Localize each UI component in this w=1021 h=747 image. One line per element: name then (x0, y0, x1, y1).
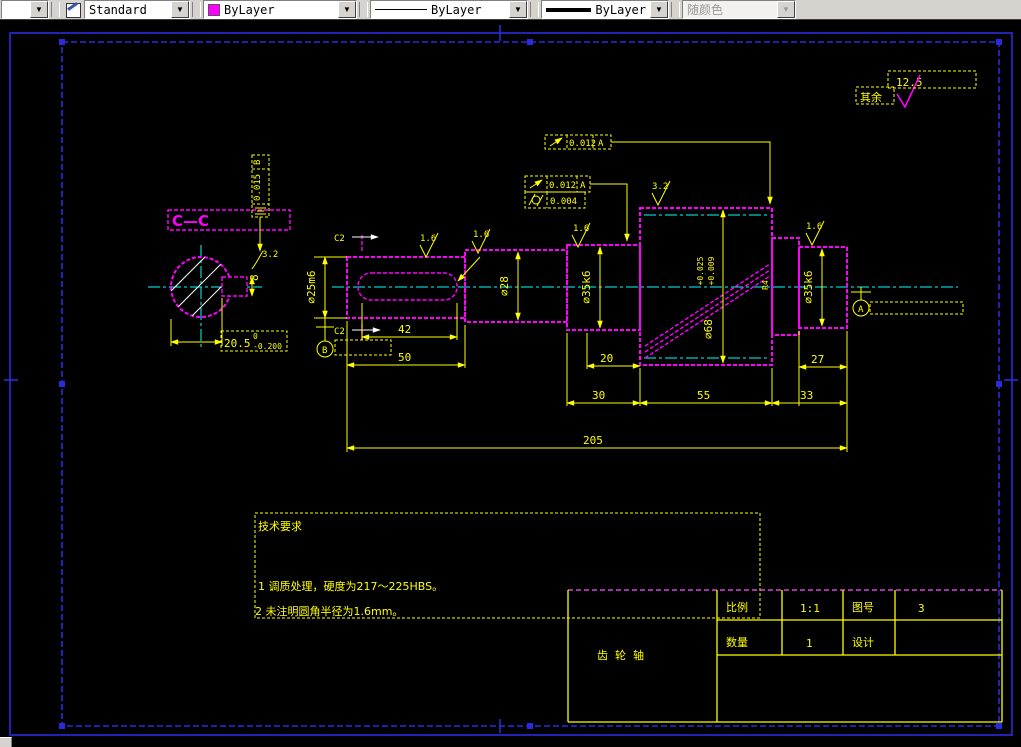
scrollbar-corner (0, 737, 12, 747)
section-dimensions[interactable]: 20.5 0 -0.200 8 3.2 (171, 250, 287, 351)
linetype-combo[interactable]: ByLayer ▼ (370, 0, 528, 19)
title-block[interactable]: 齿轮轴 比例 1:1 图号 3 数量 1 设计 (568, 590, 1002, 722)
color-combo[interactable]: ByLayer ▼ (203, 0, 357, 19)
roughness-value: 3.2 (652, 182, 668, 192)
key-width-dim: 8 (248, 274, 261, 281)
dia-left-text: ∅25m6 (305, 270, 318, 303)
scale-value: 1:1 (800, 602, 820, 615)
section-tol-upper: 0 (253, 332, 258, 341)
roughness-default[interactable]: 其余 12.5 (856, 71, 976, 107)
drawing-canvas[interactable]: C—C 20.5 0 -0.200 8 3.2 0.012 A (0, 19, 1021, 747)
dim-total-length[interactable]: 205 (347, 434, 847, 448)
plotstyle-combo: 随颜色 ▼ (682, 0, 796, 19)
tech-requirements[interactable]: 技术要求 1 调质处理，硬度为217～225HBS。 2 未注明圆角半径为1.6… (255, 513, 760, 618)
chamfer-bottom[interactable]: C2 (334, 327, 380, 337)
layer-combo-partial[interactable]: ▼ (1, 0, 49, 19)
chevron-down-icon[interactable]: ▼ (171, 1, 189, 18)
toolbar-separator (530, 2, 539, 17)
symmetry-icon (255, 208, 266, 214)
color-combo-text: ByLayer (204, 1, 338, 18)
roughness-keyway-shaft[interactable]: 1.6 (420, 233, 438, 257)
datum-a[interactable]: A (851, 287, 963, 316)
toolbar-separator (51, 2, 60, 17)
chevron-down-icon[interactable]: ▼ (509, 1, 527, 18)
gdt4-value: 0.015 (253, 174, 263, 201)
cylindricity-icon (529, 194, 543, 206)
roughness-left-journal[interactable]: 1.6 (572, 223, 590, 247)
chevron-down-icon[interactable]: ▼ (338, 1, 356, 18)
gdt1-datum: A (598, 139, 604, 149)
circular-runout-icon (530, 180, 542, 188)
dim-left-section-length[interactable]: 50 (347, 351, 465, 365)
gdt1-value: 0.012 (569, 139, 596, 149)
section-label: C—C (172, 212, 209, 230)
circular-runout-icon (550, 138, 562, 146)
tech-req-item-2: 2 未注明圆角半径为1.6mm。 (255, 604, 403, 618)
linetype-combo-text: ByLayer (371, 1, 509, 18)
linetype-value: ByLayer (431, 3, 482, 17)
dim-spacer[interactable]: 20 (587, 352, 640, 366)
roughness-step-shaft[interactable]: 1.6 (458, 229, 490, 281)
gdt-frame-runout-top[interactable]: 0.012 A (545, 135, 770, 204)
dia-step-text: ∅28 (498, 276, 511, 296)
roughness-section-keyway: 3.2 (252, 250, 278, 269)
quantity-label: 数量 (726, 636, 748, 649)
drawing-no-label: 图号 (852, 601, 874, 614)
centerlines[interactable] (148, 215, 958, 358)
dim-dia-step[interactable]: ∅28 (498, 252, 518, 320)
gdt-frame-cylindricity[interactable]: 0.004 (525, 192, 585, 208)
dim-right-journal-length[interactable]: 27 (799, 353, 847, 367)
toolbar-separator (359, 2, 368, 17)
dia-gear-text: ∅68 (702, 319, 715, 339)
chevron-down-icon[interactable]: ▼ (650, 1, 668, 18)
gdt2-datum: A (580, 181, 586, 191)
thin-line-icon (375, 9, 427, 10)
drawing-no-value: 3 (918, 602, 925, 615)
cad-application-window: ▼ Standard ▼ ByLayer ▼ ByLayer ▼ (0, 0, 1021, 747)
paper-frame[interactable] (4, 25, 1018, 735)
total-length-text: 205 (583, 434, 603, 447)
dia-gear-tol-upper: +0.025 (696, 256, 705, 285)
object-properties-toolbar: ▼ Standard ▼ ByLayer ▼ ByLayer ▼ (0, 0, 1021, 20)
gdt-frame-symmetry[interactable]: B 0.015 (252, 155, 269, 251)
chevron-down-icon: ▼ (777, 1, 795, 18)
gdt4-datum: B (253, 160, 263, 165)
left-journal-length-text: 30 (592, 389, 605, 402)
part-name: 齿轮轴 (597, 648, 651, 662)
dim-gear-length[interactable]: 55 (640, 389, 772, 403)
dia-left-journal-text: ∅35k6 (580, 270, 593, 303)
tech-req-title: 技术要求 (258, 520, 302, 533)
toolbar-separator (192, 2, 201, 17)
gdt3-value: 0.004 (550, 197, 577, 207)
text-style-combo[interactable]: Standard ▼ (84, 0, 190, 19)
dim-right-step-length[interactable]: 33 (772, 389, 847, 403)
dim-left-journal-length[interactable]: 30 (567, 389, 640, 403)
color-swatch (208, 4, 220, 16)
scale-label: 比例 (726, 600, 748, 614)
designer-label: 设计 (852, 636, 874, 649)
dia-right-journal-text: ∅35k6 (802, 270, 815, 303)
tech-req-item-1: 1 调质处理，硬度为217～225HBS。 (258, 579, 443, 593)
gdt2-value: 0.012 (549, 181, 576, 191)
keyway-length-text: 42 (398, 323, 411, 336)
lineweight-combo[interactable]: ByLayer ▼ (541, 0, 669, 19)
section-width-dim: 20.5 (224, 337, 251, 350)
chamfer-label: C2 (334, 327, 345, 337)
dia-gear-tol-lower: +0.009 (707, 256, 716, 285)
fillet-label: R4 (761, 280, 770, 290)
datum-b-label: B (322, 346, 327, 356)
lineweight-value: ByLayer (595, 3, 646, 17)
thick-line-icon (546, 8, 591, 12)
roughness-value: 1.6 (420, 234, 436, 244)
plotstyle-value: 随颜色 (683, 1, 777, 18)
section-tol-lower: -0.200 (253, 342, 282, 351)
roughness-right-journal[interactable]: 1.6 (806, 221, 824, 245)
selection-grips (59, 39, 1002, 729)
text-style-icon[interactable] (64, 2, 82, 18)
datum-a-label: A (858, 305, 864, 315)
roughness-gear[interactable]: 3.2 (652, 181, 670, 205)
text-style-value: Standard (85, 1, 171, 18)
gear-length-text: 55 (697, 389, 710, 402)
chamfer-top[interactable]: C2 (334, 234, 378, 244)
roughness-value: 3.2 (262, 250, 278, 260)
chamfer-label: C2 (334, 234, 345, 244)
left-section-length-text: 50 (398, 351, 411, 364)
quantity-value: 1 (806, 637, 813, 650)
lineweight-combo-text: ByLayer (542, 1, 650, 18)
roughness-value: 1.6 (806, 222, 822, 232)
right-step-length-text: 33 (800, 389, 813, 402)
right-journal-length-text: 27 (811, 353, 824, 366)
dim-dia-left-journal[interactable]: ∅35k6 (580, 247, 600, 328)
spacer-text: 20 (600, 352, 613, 365)
surface-default-label: 其余 (860, 90, 882, 104)
toolbar-separator (671, 2, 680, 17)
color-value: ByLayer (224, 3, 275, 17)
layer-combo-value (2, 1, 30, 18)
chevron-down-icon[interactable]: ▼ (30, 1, 48, 18)
